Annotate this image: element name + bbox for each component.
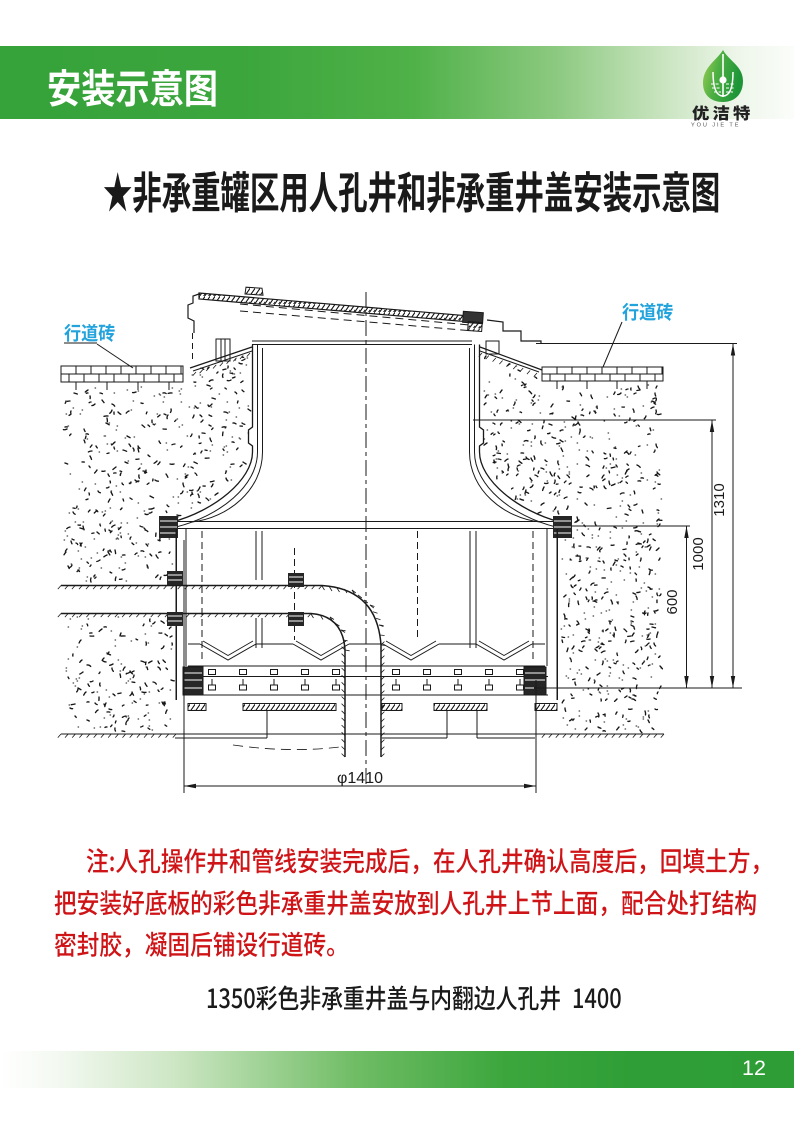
svg-text:600: 600 (664, 589, 681, 614)
svg-text:1310: 1310 (711, 483, 728, 516)
svg-text:1000: 1000 (690, 537, 707, 570)
svg-text:φ1410: φ1410 (337, 770, 383, 787)
